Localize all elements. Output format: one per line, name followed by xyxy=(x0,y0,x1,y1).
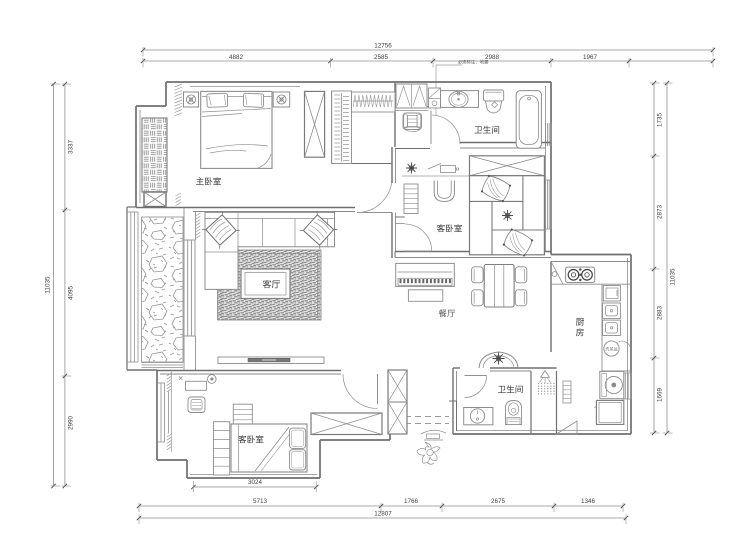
svg-text:3337: 3337 xyxy=(68,140,75,155)
svg-text:2988: 2988 xyxy=(485,54,500,61)
svg-text:2873: 2873 xyxy=(657,205,664,220)
svg-text:1967: 1967 xyxy=(583,54,598,61)
svg-text:11035: 11035 xyxy=(670,268,677,286)
svg-text:1669: 1669 xyxy=(657,388,664,403)
svg-text:1735: 1735 xyxy=(657,113,664,128)
svg-text:12807: 12807 xyxy=(374,511,392,518)
svg-text:4882: 4882 xyxy=(229,54,244,61)
svg-text:2990: 2990 xyxy=(68,416,75,431)
svg-text:2883: 2883 xyxy=(657,306,664,321)
svg-text:11035: 11035 xyxy=(45,276,52,294)
svg-text:12756: 12756 xyxy=(374,43,392,50)
svg-text:3024: 3024 xyxy=(248,479,263,486)
svg-text:4095: 4095 xyxy=(68,286,75,301)
svg-text:1766: 1766 xyxy=(404,498,419,505)
svg-text:2585: 2585 xyxy=(374,54,389,61)
svg-text:2675: 2675 xyxy=(491,498,506,505)
svg-text:5713: 5713 xyxy=(253,498,268,505)
svg-text:1346: 1346 xyxy=(581,498,596,505)
